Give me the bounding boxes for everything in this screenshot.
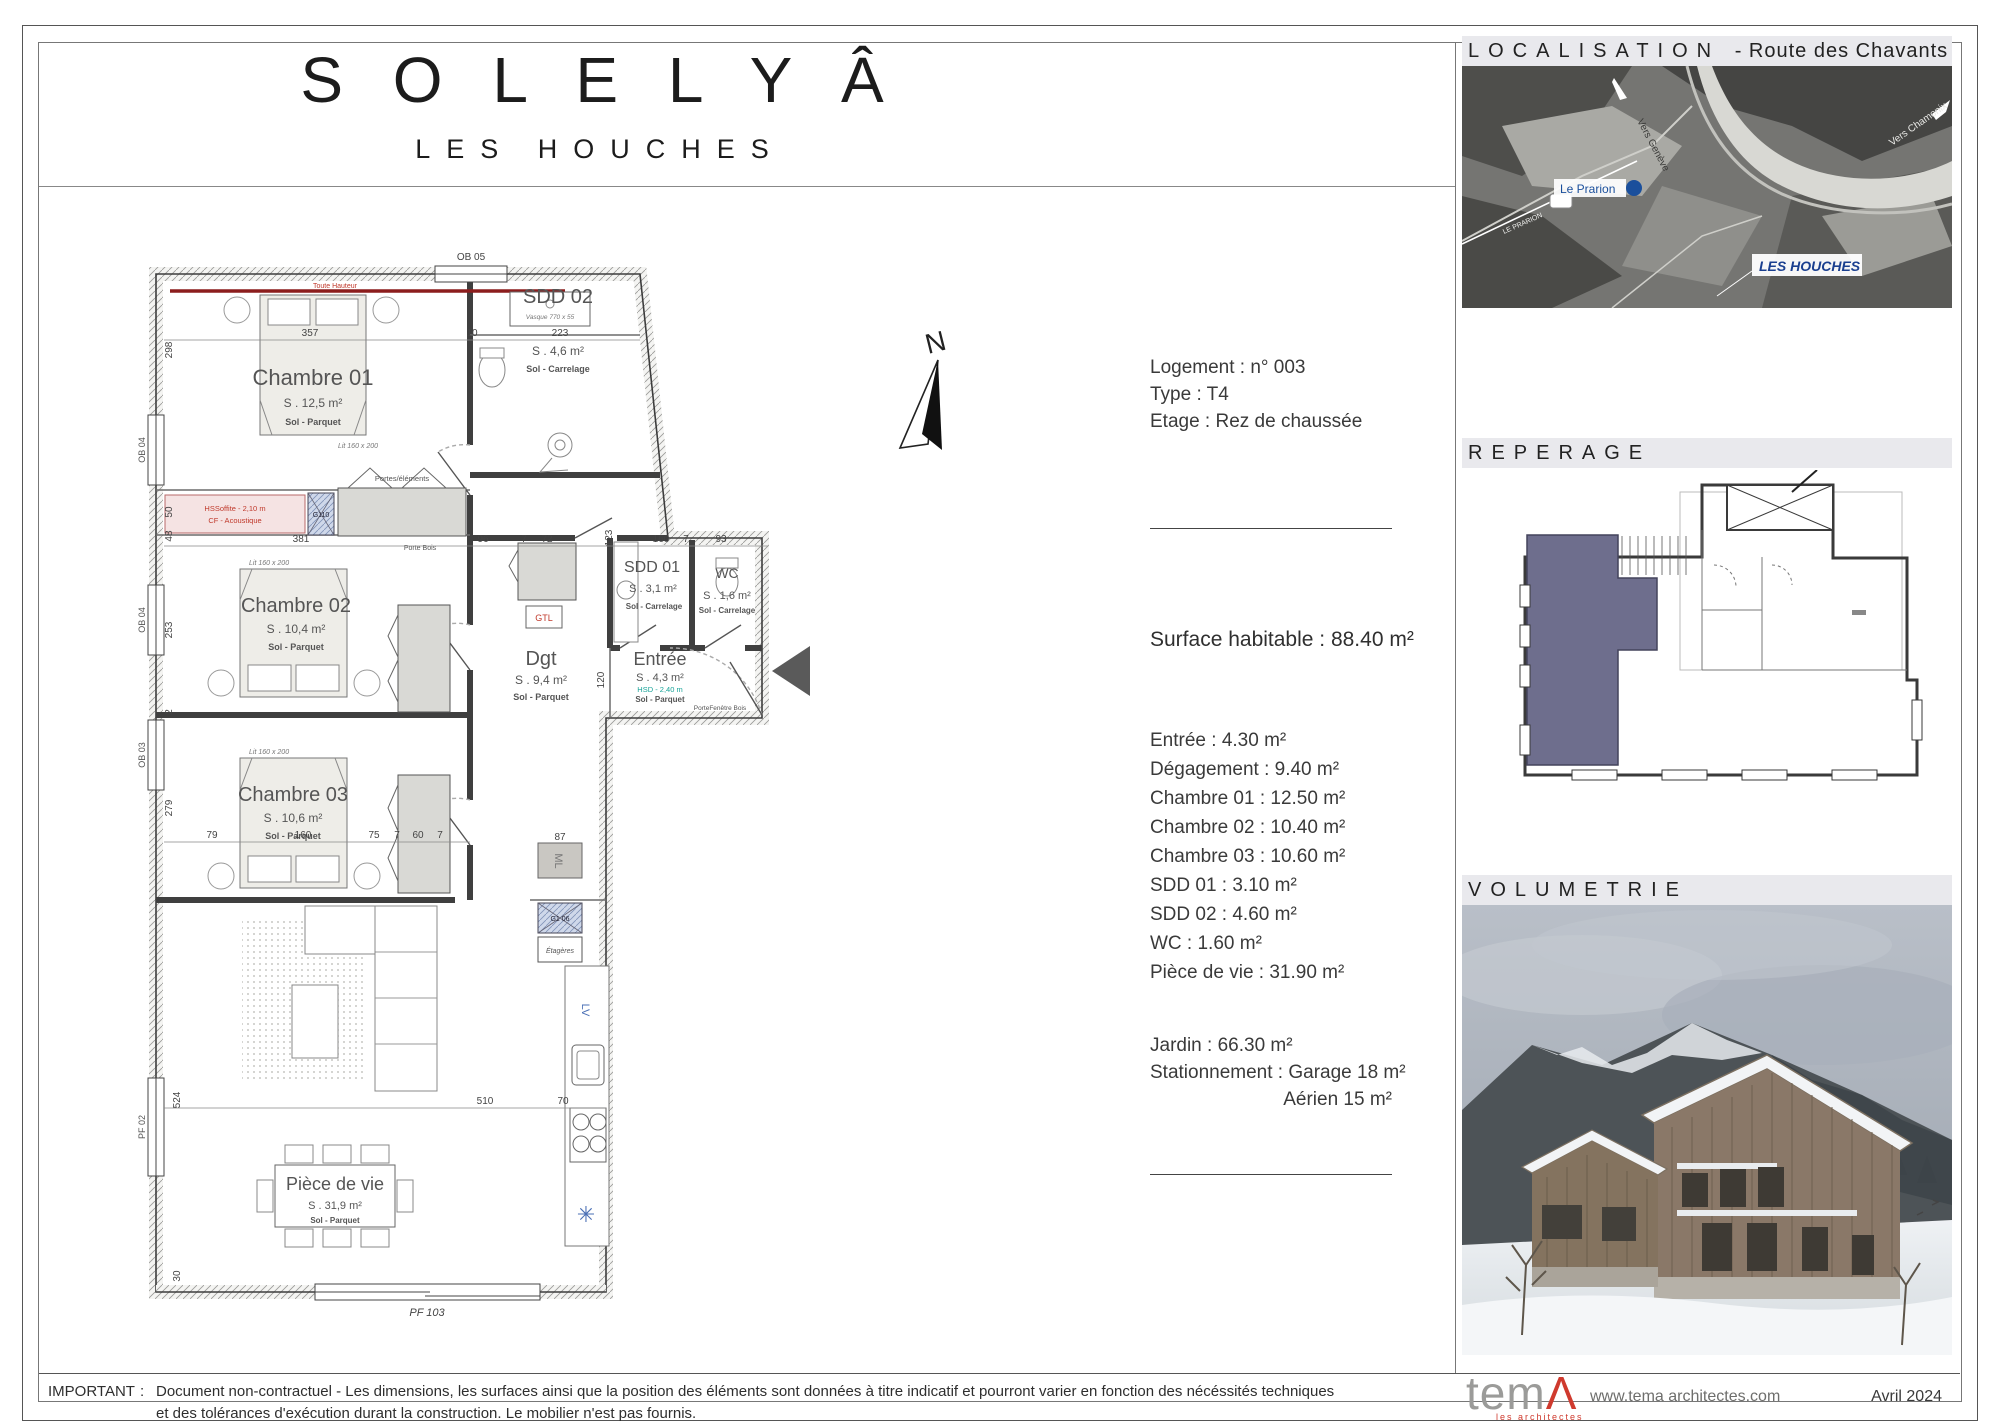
project-title: S O L E L Y Â [170,48,1030,112]
sdd02-area: S . 4,6 m² [532,344,584,358]
north-label: N [922,325,949,360]
section-volumetrie: VOLUMETRIE [1462,875,1952,905]
unit-info: Logement : n° 003 Type : T4 Etage : Rez … [1150,354,1420,435]
etage-line: Etage : Rez de chaussée [1150,408,1420,435]
volumetrie-title: VOLUMETRIE [1468,879,1688,901]
chambre01-name: Chambre 01 [252,365,373,390]
surface-habitable: Surface habitable : 88.40 m² [1150,628,1414,652]
wc-floor: Sol - Carrelage [699,606,756,615]
dim-120: 120 [596,671,607,688]
les-houches-label: LES HOUCHES [1759,258,1861,274]
dgt-floor: Sol - Parquet [513,692,569,702]
footer-right: temΛ les architectes www.tema architecte… [1466,1376,1952,1416]
disclaimer-line1: Document non-contractuel - Les dimension… [156,1381,1446,1403]
dim-75: 75 [368,830,380,841]
ml-label: ML [552,853,564,868]
header: S O L E L Y Â LES HOUCHES [170,48,1030,165]
entree-height: HSD - 2,40 m [637,685,682,694]
surface-item: Dégagement : 9.40 m² [1150,755,1345,784]
chambre02-area: S . 10,4 m² [267,622,326,636]
dgt-name: Dgt [525,648,557,670]
chambre01-floor: Sol - Parquet [285,417,341,427]
section-reperage: REPERAGE [1462,438,1952,468]
section-localisation: LOCALISATION - Route des Chavants [1462,36,1952,66]
dim-223: 223 [552,328,569,339]
footer-separator [39,1373,1960,1374]
dgt-area: S . 9,4 m² [515,673,567,687]
dim-72: 72 [541,534,553,545]
surface-item: Chambre 01 : 12.50 m² [1150,784,1345,813]
room-chambre03: Lit 160 x 200 Chambre 03 S . 10,6 m² Sol… [208,749,450,893]
sdd01-area: S . 3,1 m² [629,583,677,595]
surface-item: Pièce de vie : 31.90 m² [1150,958,1345,987]
dim-279: 279 [164,799,175,816]
document-date: Avril 2024 [1871,1388,1942,1406]
dim-7c: 7 [394,830,400,841]
dim-123: 123 [604,529,615,546]
rule-1 [1150,528,1392,529]
dim-93: 93 [715,534,727,545]
chambre03-area: S . 10,6 m² [264,811,323,825]
disclaimer: Document non-contractuel - Les dimension… [156,1381,1446,1423]
volumetrie-render [1462,905,1952,1355]
dim-7b: 7 [683,534,689,545]
etageres-label: Étagères [546,946,575,955]
bottom-window: PF 103 [315,1284,540,1319]
dim-298: 298 [164,341,175,358]
localisation-map: LE PRARION Vers Genève Vers Chamonix Le … [1462,66,1952,308]
type-line: Type : T4 [1150,381,1420,408]
room-sdd02: Vasque 770 x 55 SDD 02 S . 4,6 m² Sol - … [479,286,593,472]
project-subtitle: LES HOUCHES [170,134,1030,165]
chambre03-name: Chambre 03 [238,784,348,806]
dim-510: 510 [477,1096,494,1107]
g110-label: G110 [313,512,330,519]
entree-name: Entrée [633,649,686,669]
room-entree: Entrée S . 4,3 m² HSD - 2,40 m Sol - Par… [633,649,746,712]
jardin-line: Jardin : 66.30 m² [1150,1032,1406,1059]
piecedevie-name: Pièce de vie [286,1174,384,1194]
dim-524: 524 [172,1091,183,1108]
vasque-label: Vasque 770 x 55 [526,314,575,321]
localisation-route: - Route des Chavants [1735,40,1948,62]
surface-item: SDD 02 : 4.60 m² [1150,900,1345,929]
disclaimer-line2: et des tolérances d'exécution durant la … [156,1403,1446,1423]
north-compass: N [870,318,1000,488]
surface-item: WC : 1.60 m² [1150,929,1345,958]
rule-2 [1150,1174,1392,1175]
window-label-pf02: PF 02 [137,1115,147,1139]
localisation-title: LOCALISATION [1468,40,1720,62]
dim-60: 60 [412,830,424,841]
prarion-dot-icon [1626,180,1642,196]
dim-87: 87 [554,832,566,843]
wc-name: WC [715,565,738,581]
reperage-title: REPERAGE [1468,442,1651,464]
soffit-strip: HSSoffite - 2,10 m CF - Acoustique G110 … [165,468,466,552]
chambre01-bed-label: Lit 160 x 200 [338,443,378,450]
dim-70: 70 [557,1096,569,1107]
tema-logo-subtitle: les architectes [1496,1412,1584,1422]
dim-30: 30 [172,1270,183,1282]
dim-79: 79 [206,830,218,841]
room-sdd01: SDD 01 S . 3,1 m² Sol - Carrelage [614,542,683,642]
logement-line: Logement : n° 003 [1150,354,1420,381]
dim-7d: 7 [437,830,443,841]
dim-96: 96 [477,534,489,545]
reperage-plan [1462,470,1952,830]
room-chambre02: Lit 160 x 200 Chambre 02 S . 10,4 m² Sol… [208,560,450,712]
gtl-label: GTL [535,613,553,623]
dim-48: 48 [164,530,175,542]
entree-floor: Sol - Parquet [635,695,685,704]
chambre01-area: S . 12,5 m² [284,396,343,410]
plumbing-asterisk-icon: ✳ [577,1202,595,1227]
toute-hauteur-label: Toute Hauteur [313,283,358,290]
sdd01-floor: Sol - Carrelage [626,602,683,611]
dim-50: 50 [164,506,175,518]
dim-160b: 160 [295,830,312,841]
surface-item: Chambre 03 : 10.60 m² [1150,842,1345,871]
window-label-ob04a: OB 04 [137,437,147,463]
floor-plan: OB 04 OB 04 OB 03 PF 02 OB 05 PF 103 Tou… [120,200,820,1340]
dim-253: 253 [164,621,175,638]
porte-fenetre-label: PorteFenêtre Bois [694,705,747,712]
dim-381: 381 [293,534,310,545]
piecedevie-floor: Sol - Parquet [310,1216,360,1225]
entrance-arrow-icon [772,646,810,696]
surface-item: Chambre 02 : 10.40 m² [1150,813,1345,842]
exterior-info: Jardin : 66.30 m² Stationnement : Garage… [1150,1032,1406,1113]
dim-160a: 160 [653,534,670,545]
prarion-label: Le Prarion [1560,182,1615,196]
chambre03-bed-label: Lit 160 x 200 [249,749,289,756]
g106-label: G1 06 [550,916,569,923]
aerien-line: Aérien 15 m² [1150,1086,1392,1113]
header-separator [39,186,1455,187]
important-colon: : [140,1381,144,1403]
room-wc: WC S . 1,6 m² Sol - Carrelage [699,558,756,615]
living-room: Pièce de vie S . 31,9 m² Sol - Parquet [242,906,437,1247]
sdd01-name: SDD 01 [624,559,680,576]
vertical-divider [1455,42,1456,1374]
tema-url: www.tema architectes.com [1590,1388,1780,1406]
plan-sheet: S O L E L Y Â LES HOUCHES [0,0,2000,1423]
portes-elements-label: Portes/éléments [375,474,429,483]
window-label-ob03: OB 03 [137,742,147,768]
entree-area: S . 4,3 m² [636,672,684,684]
window-label-ob04b: OB 04 [137,607,147,633]
sdd02-floor: Sol - Carrelage [526,364,590,374]
lv-label: LV [579,1004,591,1017]
kitchen: ML G1 06 Étagères LV ✳ [538,843,609,1246]
window-label-pf103: PF 103 [409,1307,445,1319]
surfaces-list: Entrée : 4.30 m² Dégagement : 9.40 m² Ch… [1150,726,1345,987]
tema-logo: temΛ [1466,1370,1577,1416]
wc-area: S . 1,6 m² [703,590,751,602]
chambre02-name: Chambre 02 [241,595,351,617]
chambre02-bed-label: Lit 160 x 200 [249,560,289,567]
stationnement-line: Stationnement : Garage 18 m² [1150,1059,1406,1086]
room-chambre01: Toute Hauteur Chambre 01 S . 12,5 m² Sol… [170,283,565,450]
top-window: OB 05 [435,252,507,282]
cf-label: CF - Acoustique [208,516,261,525]
hsoffite-label: HSSoffite - 2,10 m [204,504,265,513]
sdd02-name: SDD 02 [523,286,593,308]
room-dgt: GTL Dgt S . 9,4 m² Sol - Parquet [509,543,576,702]
surface-item: SDD 01 : 3.10 m² [1150,871,1345,900]
chambre03-floor: Sol - Parquet [265,831,321,841]
dim-357: 357 [302,328,319,339]
dim-10: 10 [466,328,478,339]
piecedevie-area: S . 31,9 m² [308,1200,362,1212]
chambre02-floor: Sol - Parquet [268,642,324,652]
dim-7a: 7 [521,534,527,545]
surface-item: Entrée : 4.30 m² [1150,726,1345,755]
dim-2: 2 [164,709,175,715]
window-label-ob05: OB 05 [457,252,486,263]
